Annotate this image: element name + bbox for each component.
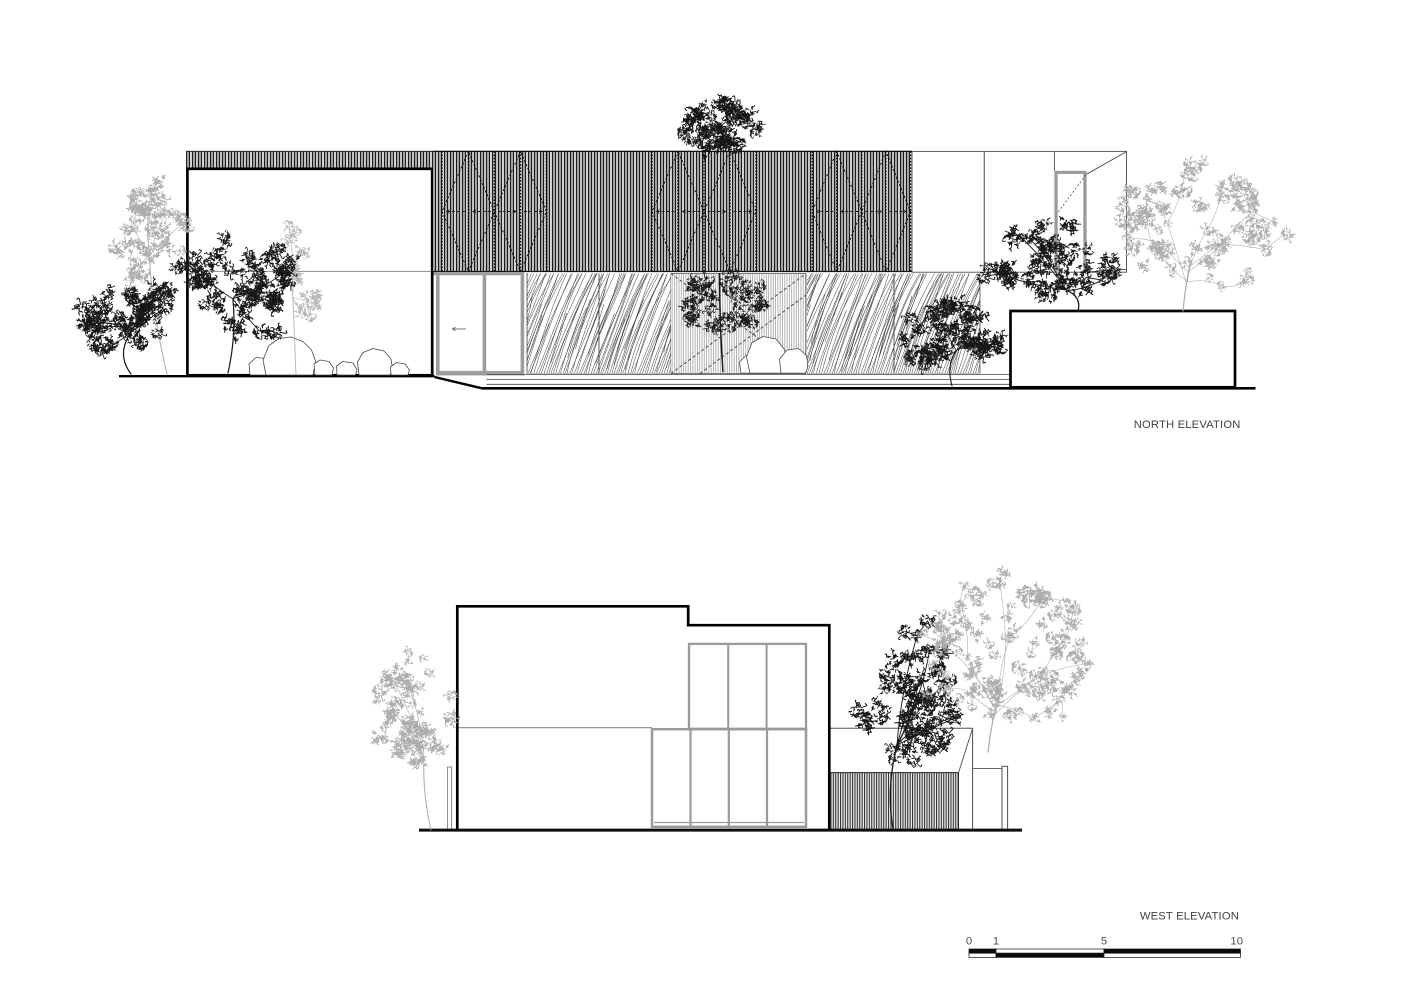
svg-text:5: 5	[1101, 935, 1107, 947]
svg-text:1: 1	[993, 935, 999, 947]
svg-text:0: 0	[966, 935, 972, 947]
svg-text:WEST ELEVATION: WEST ELEVATION	[1140, 911, 1239, 923]
svg-text:10: 10	[1230, 935, 1243, 947]
svg-text:NORTH ELEVATION: NORTH ELEVATION	[1134, 419, 1241, 431]
